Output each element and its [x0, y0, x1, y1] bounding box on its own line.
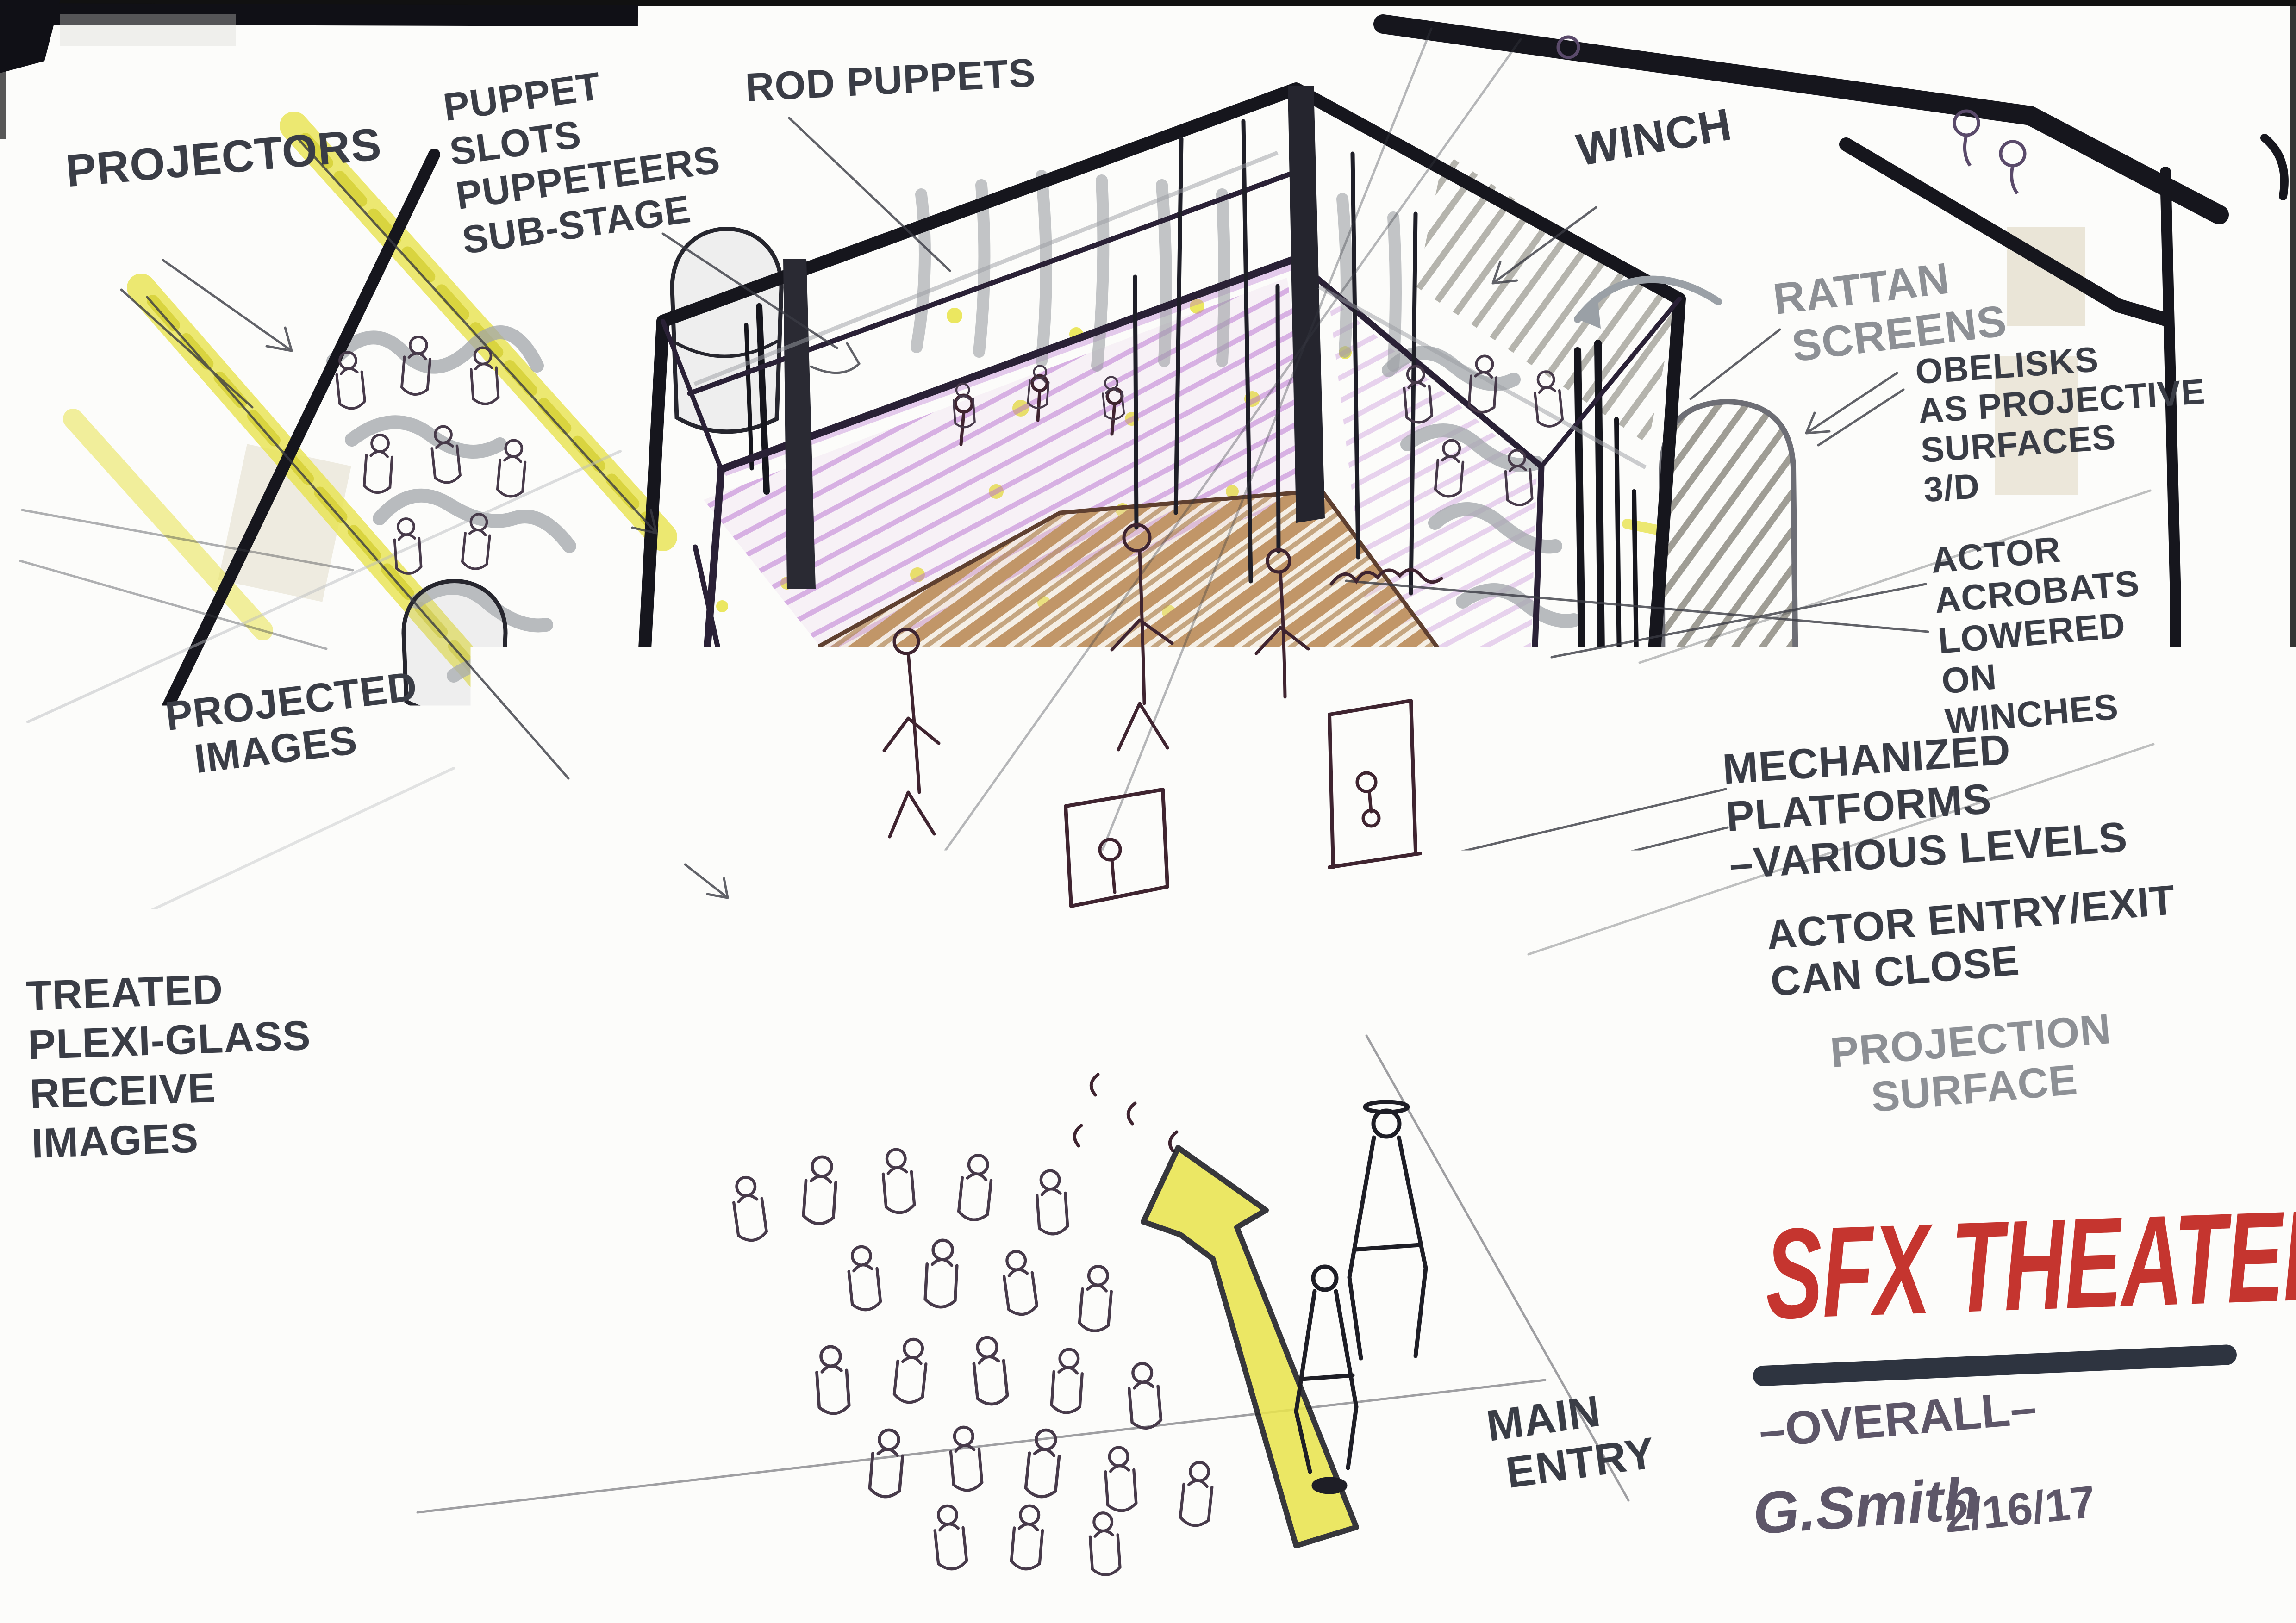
top-right-hatch [1416, 153, 1676, 444]
annotation-obelisks: OBELISKS AS PROJECTIVE SURFACES 3/D [1914, 333, 2212, 510]
concept-sketch-sheet: PROJECTORS PUPPET SLOTS PUPPETEERS SUB-S… [0, 0, 2296, 1623]
fine-audience-scribbles [704, 1203, 1236, 1405]
annotation-treated-plexi: TREATED PLEXI-GLASS RECEIVE IMAGES [25, 962, 315, 1169]
annotation-mechanized-platforms: MECHANIZED PLATFORMS –VARIOUS LEVELS [1721, 718, 2129, 889]
annotation-puppet-slots: PUPPET SLOTS PUPPETEERS SUB-STAGE [441, 49, 729, 263]
annotation-actor-acrobats: ACTOR ACROBATS LOWERED ON WINCHES [1929, 522, 2152, 742]
sheet-title: SFX THEATER [1763, 1181, 2296, 1348]
sheet-number: 1 [2176, 1552, 2208, 1609]
